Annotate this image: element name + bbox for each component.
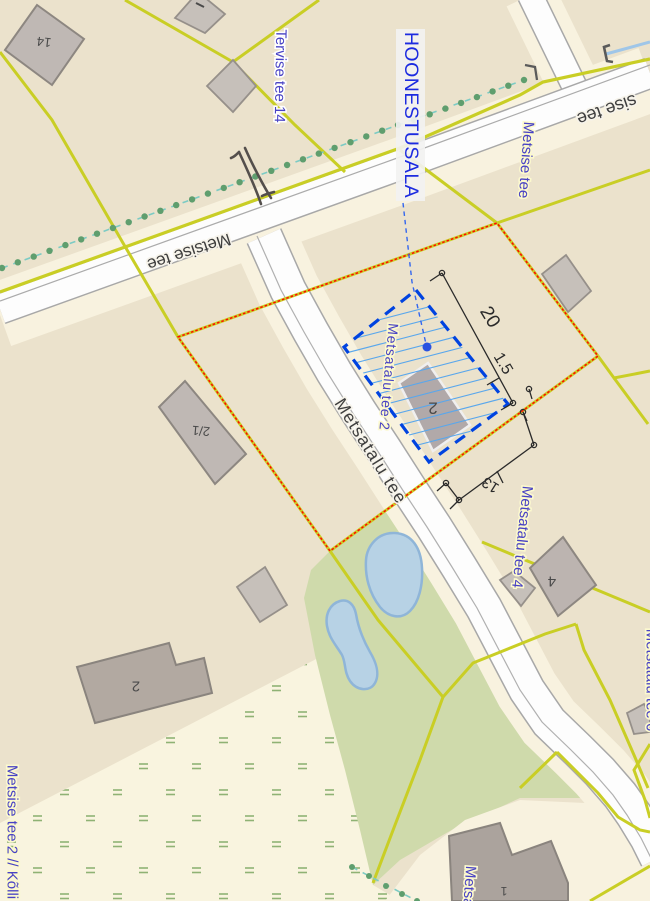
svg-text:Metsatalu tee 6: Metsatalu tee 6 bbox=[643, 629, 650, 732]
svg-text:4: 4 bbox=[548, 573, 556, 590]
svg-text:2: 2 bbox=[428, 399, 437, 418]
svg-text:2: 2 bbox=[132, 678, 140, 695]
svg-text:1: 1 bbox=[500, 884, 507, 898]
svg-text:Metsise tee 2 // Kõlli: Metsise tee 2 // Kõlli bbox=[4, 765, 21, 899]
svg-text:14: 14 bbox=[36, 34, 52, 51]
svg-text:Tervise tee 14: Tervise tee 14 bbox=[271, 29, 290, 123]
svg-text:HOONESTUSALA: HOONESTUSALA bbox=[400, 32, 422, 198]
svg-text:2/1: 2/1 bbox=[191, 423, 210, 440]
